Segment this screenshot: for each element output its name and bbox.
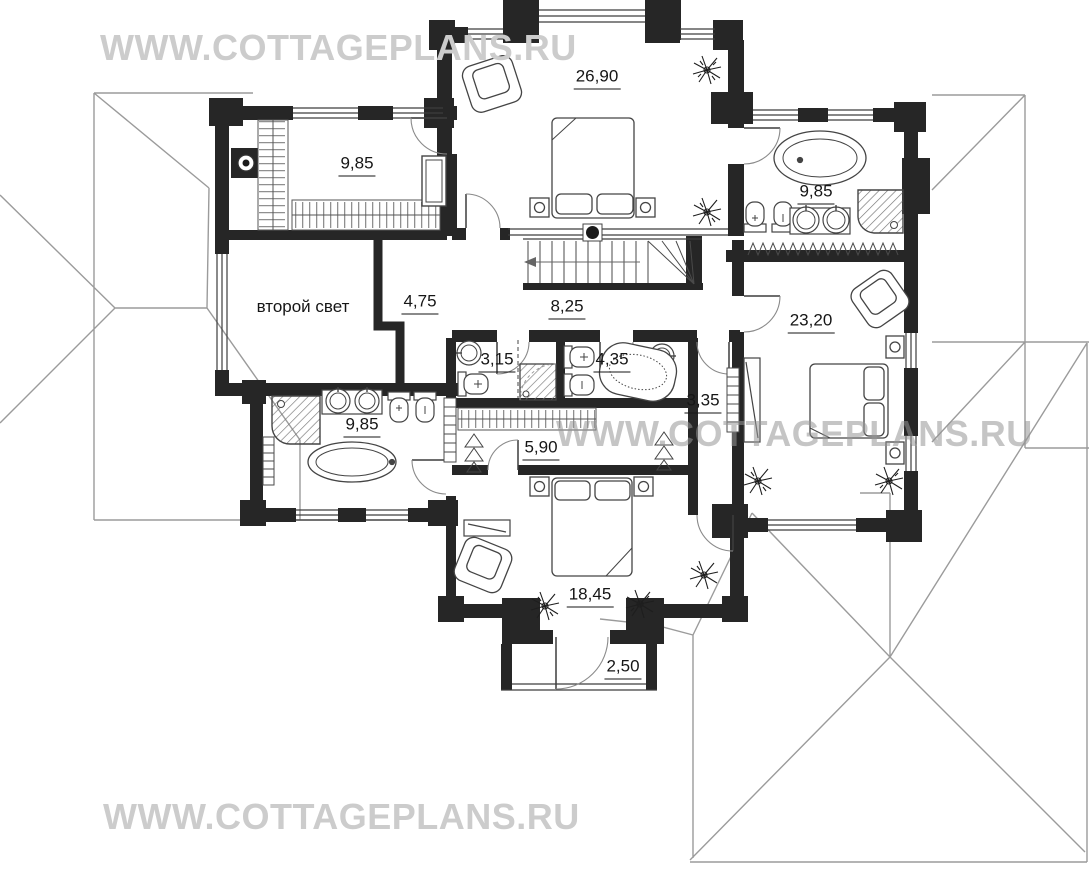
bidet-icon bbox=[564, 374, 594, 396]
sink-icon bbox=[456, 341, 481, 365]
armchair-icon bbox=[451, 534, 515, 595]
shower-icon bbox=[858, 190, 903, 233]
shower-icon bbox=[272, 396, 320, 444]
room-label-bedroom-top: 26,90 bbox=[574, 67, 621, 90]
double-sink-icon bbox=[790, 205, 850, 234]
toilet-icon bbox=[564, 346, 594, 368]
watermark-middle: WWW.COTTAGEPLANS.RU bbox=[556, 413, 1033, 455]
chimney-icon bbox=[238, 155, 254, 171]
tv-cabinet-icon bbox=[464, 520, 510, 536]
column-icon bbox=[583, 224, 602, 241]
room-label-closet-corridor: 3,35 bbox=[684, 391, 721, 414]
floor-plan: WWW.COTTAGEPLANS.RU WWW.COTTAGEPLANS.RU … bbox=[0, 0, 1089, 869]
armchair-icon bbox=[847, 266, 913, 331]
watermark-bottom: WWW.COTTAGEPLANS.RU bbox=[103, 796, 580, 838]
bed-icon bbox=[530, 477, 653, 576]
stairs bbox=[524, 241, 694, 284]
toilet-icon bbox=[388, 392, 410, 422]
room-label-balcony: 2,50 bbox=[604, 657, 641, 680]
corridor-step-wall bbox=[378, 236, 400, 383]
room-label-dressing-top-left: 9,85 bbox=[338, 154, 375, 177]
toilet-icon bbox=[458, 372, 488, 396]
double-sink-icon bbox=[322, 387, 382, 414]
shower-icon bbox=[518, 340, 556, 400]
room-label-wc-right: 4,35 bbox=[593, 350, 630, 373]
room-label-bathroom-left: 9,85 bbox=[343, 415, 380, 438]
stairs-direction-arrow bbox=[524, 257, 536, 267]
room-label-wc-left: 3,15 bbox=[478, 350, 515, 373]
bathtub-icon bbox=[308, 442, 396, 482]
toilet-icon bbox=[744, 202, 766, 232]
room-label-bedroom-bottom: 18,45 bbox=[567, 585, 614, 608]
watermark-top: WWW.COTTAGEPLANS.RU bbox=[100, 27, 577, 69]
room-label-hall: 8,25 bbox=[548, 297, 585, 320]
bidet-icon bbox=[414, 392, 436, 422]
room-label-bathroom-top-right: 9,85 bbox=[797, 182, 834, 205]
bathtub-icon bbox=[774, 131, 866, 185]
void-label: второй свет bbox=[257, 297, 350, 317]
bed-icon bbox=[530, 118, 655, 218]
room-label-bedroom-right: 23,20 bbox=[788, 311, 835, 334]
room-label-corridor: 4,75 bbox=[401, 292, 438, 315]
room-label-wardrobe: 5,90 bbox=[522, 438, 559, 461]
